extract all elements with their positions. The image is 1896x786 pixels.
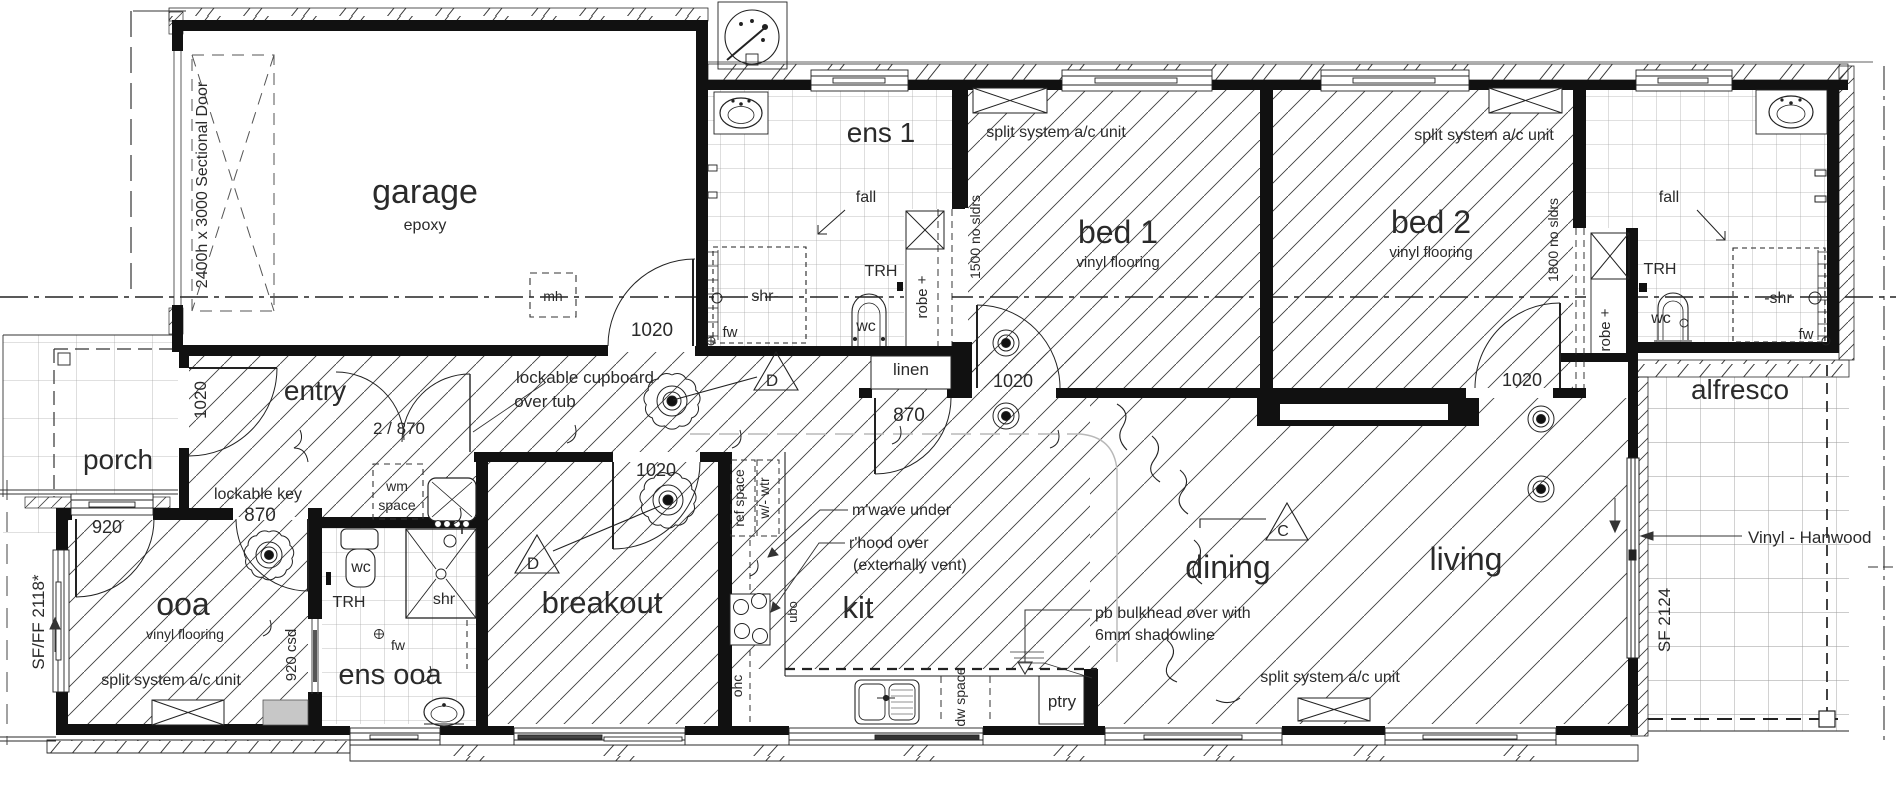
svg-text:SF/FF 2118*: SF/FF 2118* (29, 574, 48, 669)
svg-text:pb bulkhead over with: pb bulkhead over with (1095, 605, 1251, 622)
svg-text:wm: wm (385, 478, 408, 494)
svg-text:(externally vent): (externally vent) (853, 557, 967, 574)
svg-text:920: 920 (92, 517, 122, 537)
svg-text:2400h x 3000 Sectional Door: 2400h x 3000 Sectional Door (194, 81, 211, 288)
svg-text:fw: fw (1799, 326, 1814, 343)
svg-text:ens 1: ens 1 (847, 117, 916, 148)
svg-text:split system a/c unit: split system a/c unit (1414, 127, 1554, 144)
svg-text:fw: fw (391, 637, 406, 653)
svg-text:split system a/c unit: split system a/c unit (986, 124, 1126, 141)
svg-text:m'wave under: m'wave under (852, 502, 952, 519)
svg-text:linen: linen (893, 360, 929, 379)
svg-text:1020: 1020 (1502, 370, 1542, 390)
svg-text:TRH: TRH (1644, 261, 1677, 278)
svg-text:ubo: ubo (785, 601, 800, 623)
svg-text:dw space: dw space (952, 667, 968, 726)
svg-text:920 csd: 920 csd (283, 629, 300, 682)
svg-text:ooa: ooa (156, 586, 210, 622)
svg-text:ohc: ohc (729, 675, 745, 698)
svg-text:fall: fall (1659, 189, 1679, 206)
svg-text:shr-: shr- (751, 288, 779, 305)
svg-text:D: D (766, 371, 778, 390)
svg-text:r'hood over: r'hood over (849, 535, 929, 552)
svg-text:kit: kit (843, 590, 874, 625)
svg-text:over tub: over tub (514, 392, 575, 411)
svg-text:Vinyl - Hanwood: Vinyl - Hanwood (1748, 528, 1871, 547)
svg-text:wc: wc (1650, 310, 1671, 327)
svg-text:robe +: robe + (1597, 308, 1614, 351)
svg-text:fw: fw (723, 324, 738, 341)
svg-text:breakout: breakout (542, 585, 663, 620)
svg-text:1020: 1020 (636, 460, 676, 480)
svg-text:epoxy: epoxy (404, 217, 447, 234)
svg-text:mh: mh (543, 288, 562, 304)
svg-text:TRH: TRH (333, 594, 366, 611)
svg-text:SF 2124: SF 2124 (1655, 588, 1674, 652)
svg-text:1500 no sldrs: 1500 no sldrs (967, 195, 983, 279)
svg-text:ref space: ref space (731, 469, 747, 527)
svg-text:split system a/c unit: split system a/c unit (101, 672, 241, 689)
svg-text:bed 1: bed 1 (1078, 214, 1158, 250)
svg-text:ens ooa: ens ooa (338, 659, 442, 691)
svg-text:C: C (1277, 523, 1289, 540)
svg-text:ptry: ptry (1048, 692, 1077, 711)
svg-text:lockable cupboard: lockable cupboard (516, 368, 654, 387)
svg-text:870: 870 (244, 505, 276, 526)
svg-text:garage: garage (372, 173, 478, 211)
svg-text:vinyl flooring: vinyl flooring (146, 626, 224, 642)
svg-text:shr: shr (433, 591, 456, 608)
svg-text:870: 870 (893, 405, 925, 426)
svg-text:2 / 870: 2 / 870 (373, 419, 425, 438)
svg-text:w/- wtr: w/- wtr (756, 477, 772, 520)
svg-text:lockable key: lockable key (214, 486, 302, 503)
svg-text:wc: wc (350, 559, 371, 576)
svg-text:1800 no sldrs: 1800 no sldrs (1545, 198, 1561, 282)
svg-text:split system a/c unit: split system a/c unit (1260, 669, 1400, 686)
svg-text:-shr: -shr (1764, 290, 1792, 307)
svg-text:D: D (527, 554, 539, 573)
svg-text:robe +: robe + (914, 275, 931, 318)
svg-text:wc: wc (855, 318, 876, 335)
svg-text:1020: 1020 (191, 381, 210, 419)
svg-text:vinyl flooring: vinyl flooring (1389, 244, 1472, 261)
svg-text:TRH: TRH (865, 263, 898, 280)
svg-text:living: living (1430, 541, 1503, 577)
svg-text:dining: dining (1185, 549, 1270, 585)
svg-text:entry: entry (284, 375, 346, 406)
svg-text:1020: 1020 (631, 320, 673, 341)
svg-text:6mm shadowline: 6mm shadowline (1095, 627, 1215, 644)
svg-text:bed 2: bed 2 (1391, 204, 1471, 240)
svg-text:alfresco: alfresco (1691, 374, 1789, 405)
svg-text:vinyl flooring: vinyl flooring (1076, 254, 1159, 271)
svg-text:1020: 1020 (993, 371, 1033, 391)
svg-text:space: space (378, 497, 416, 513)
svg-text:porch: porch (83, 444, 153, 475)
svg-text:fall: fall (856, 189, 876, 206)
